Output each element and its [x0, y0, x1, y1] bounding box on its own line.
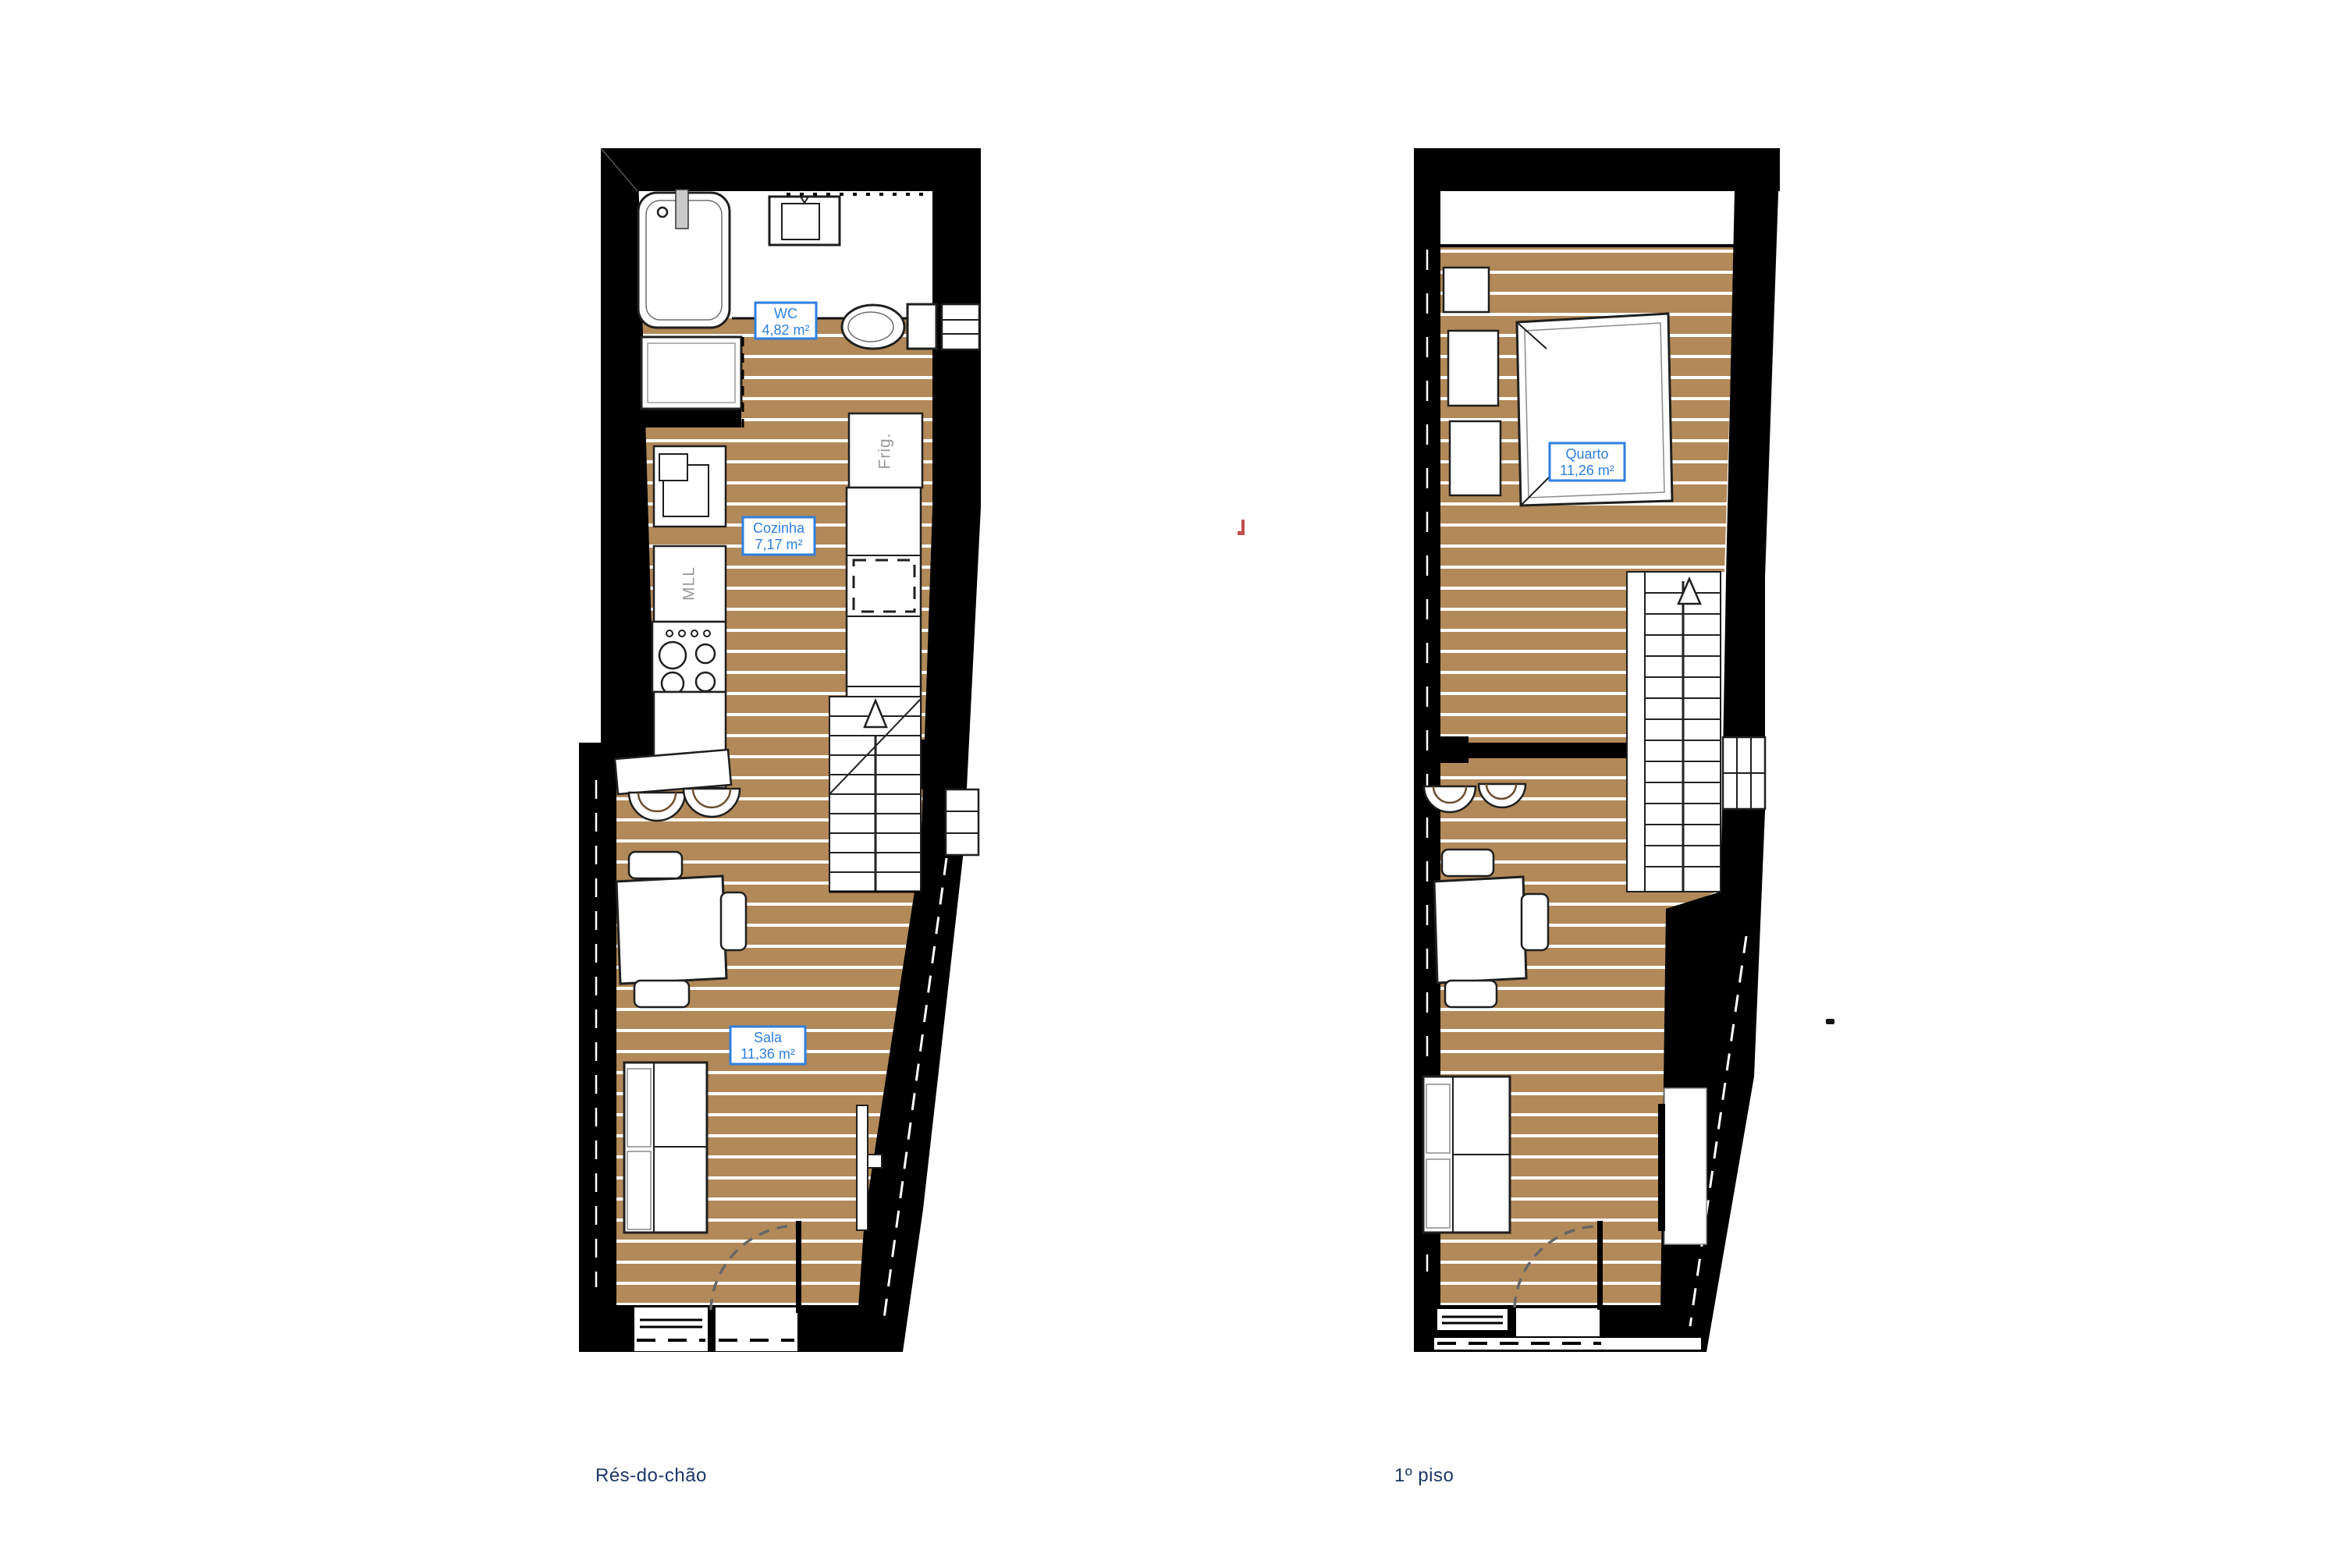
- window-stairs-ground: [946, 789, 978, 855]
- stairs-ground: [829, 697, 921, 892]
- fridge: Frig.: [849, 413, 922, 488]
- page: MLL Frig.: [0, 0, 2344, 1568]
- chair: [1445, 981, 1497, 1007]
- wall-top: [1414, 148, 1780, 191]
- room-area: 4,82 m²: [762, 322, 809, 338]
- toilet-tank: [907, 304, 936, 349]
- nightstand: [1448, 331, 1498, 406]
- room-name: Cozinha: [753, 520, 805, 536]
- wall-left-lower: [579, 743, 616, 1352]
- caption-ground-floor: Rés-do-chão: [595, 1465, 707, 1487]
- nightstand: [1444, 268, 1489, 312]
- room-name: WC: [774, 306, 797, 321]
- sofa-ground: [624, 1062, 707, 1233]
- door-leaf: [796, 1221, 801, 1313]
- toilet: [842, 304, 936, 349]
- room-label-sala: Sala 11,36 m²: [730, 1027, 805, 1064]
- room-name: Quarto: [1565, 446, 1608, 462]
- nightstand: [1450, 421, 1501, 495]
- room-area: 11,26 m²: [1560, 463, 1614, 478]
- washing-machine: [641, 337, 741, 409]
- room-label-quarto: Quarto 11,26 m²: [1550, 443, 1625, 481]
- room-name: Sala: [754, 1030, 783, 1045]
- tv-bar: [1658, 1104, 1665, 1231]
- window-facade-ground: [634, 1307, 708, 1351]
- stove: [652, 622, 726, 694]
- kitchen-sink-cabinet: [654, 446, 726, 527]
- fridge-label: Frig.: [876, 433, 894, 470]
- tv-niche-first: [1658, 1088, 1707, 1244]
- chair: [1522, 894, 1548, 950]
- bathtub-drain: [658, 208, 667, 217]
- stray-mark-black: [1826, 1019, 1834, 1024]
- chair: [721, 892, 746, 950]
- dishwasher: MLL: [654, 546, 726, 622]
- dishwasher-label: MLL: [680, 566, 698, 601]
- window-facade-first: [1437, 1309, 1508, 1330]
- door-leaf: [1597, 1221, 1603, 1310]
- floorplan-drawing: MLL Frig.: [0, 0, 2344, 1568]
- window-wc: [942, 304, 979, 349]
- door-opening-facade-ground: [716, 1307, 797, 1351]
- window-stairs-first: [1723, 737, 1765, 809]
- room-area: 11,36 m²: [740, 1046, 795, 1062]
- wc-sink: [769, 197, 840, 245]
- sofa-first: [1423, 1077, 1510, 1233]
- stairs-first: [1627, 572, 1721, 892]
- chair: [634, 981, 689, 1007]
- wall-stair-side: [917, 740, 956, 789]
- room-label-cozinha: Cozinha 7,17 m²: [743, 517, 815, 555]
- room-label-wc: WC 4,82 m²: [755, 303, 816, 339]
- first-floor-plan: Quarto 11,26 m²: [1414, 148, 1780, 1352]
- wall-divider-block: [1440, 736, 1469, 763]
- bathtub: [638, 190, 730, 328]
- chair: [629, 852, 682, 878]
- wall-top: [601, 148, 981, 191]
- stray-mark-red: [1238, 520, 1245, 535]
- ground-floor-plan: MLL Frig.: [579, 148, 981, 1352]
- chair: [1442, 850, 1493, 876]
- caption-first-floor: 1º piso: [1394, 1465, 1454, 1487]
- room-area: 7,17 m²: [755, 537, 802, 552]
- bathtub-faucet: [676, 190, 688, 229]
